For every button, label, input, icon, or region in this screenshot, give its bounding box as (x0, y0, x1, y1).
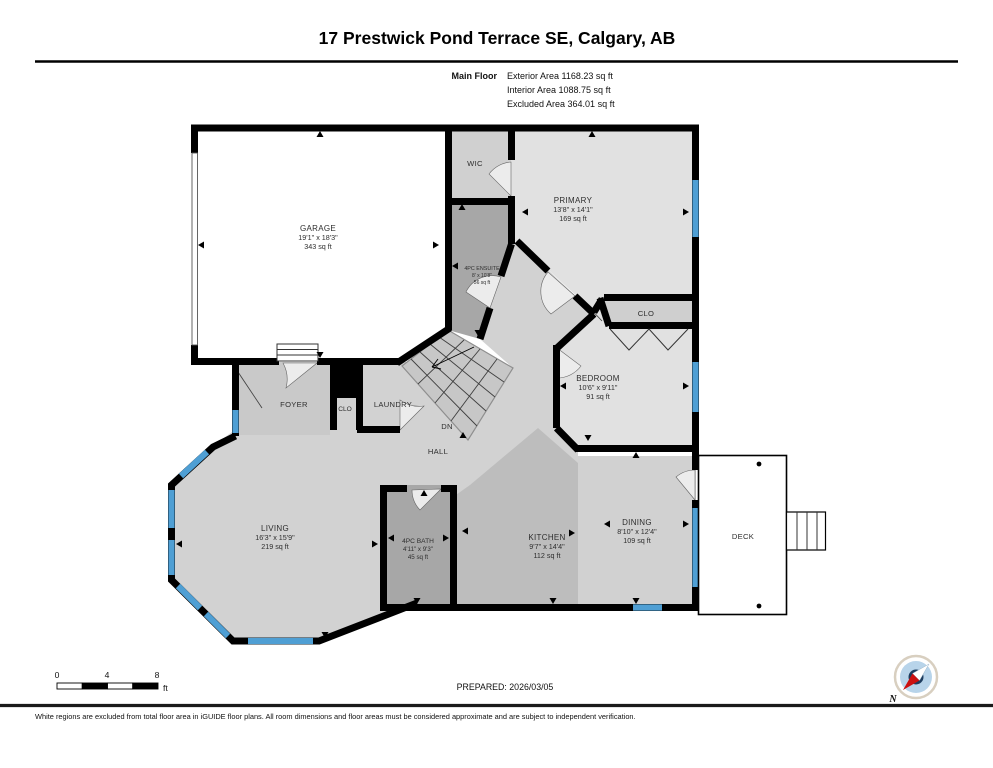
svg-text:56 sq ft: 56 sq ft (474, 280, 491, 286)
laundry-label: LAUNDRY (374, 400, 412, 409)
page-title: 17 Prestwick Pond Terrace SE, Calgary, A… (319, 28, 676, 48)
compass-north-label: N (888, 694, 897, 705)
interior-area: Interior Area 1088.75 sq ft (507, 85, 611, 95)
kitchen-label: KITCHEN 9'7" x 14'4" 112 sq ft (528, 533, 565, 560)
svg-text:109 sq ft: 109 sq ft (623, 536, 651, 545)
hall-label: HALL (428, 447, 448, 456)
svg-text:91 sq ft: 91 sq ft (586, 392, 610, 401)
svg-text:BEDROOM: BEDROOM (576, 374, 619, 383)
foyer-closet-bulkhead (336, 365, 357, 398)
deck-post (757, 604, 762, 609)
scale-tick-0: 0 (55, 670, 60, 680)
stairs-dn-label: DN (441, 422, 453, 431)
garage-door (192, 153, 198, 345)
front-steps (277, 344, 318, 361)
svg-text:45 sq ft: 45 sq ft (408, 554, 429, 561)
svg-text:13'8" x 14'1": 13'8" x 14'1" (553, 205, 593, 214)
foyer-closet-label: CLO (338, 406, 352, 413)
svg-text:169 sq ft: 169 sq ft (559, 214, 587, 223)
svg-text:PRIMARY: PRIMARY (554, 196, 593, 205)
svg-text:16'3" x 15'9": 16'3" x 15'9" (255, 533, 295, 542)
svg-text:219 sq ft: 219 sq ft (261, 542, 289, 551)
deck-post (757, 462, 762, 467)
svg-text:8' x 10'8": 8' x 10'8" (472, 273, 492, 279)
svg-text:4PC BATH: 4PC BATH (402, 538, 434, 545)
svg-text:10'6" x 9'11": 10'6" x 9'11" (579, 383, 618, 392)
svg-text:GARAGE: GARAGE (300, 224, 336, 233)
svg-text:112 sq ft: 112 sq ft (533, 551, 560, 560)
exterior-area: Exterior Area 1168.23 sq ft (507, 71, 613, 81)
svg-text:DINING: DINING (622, 518, 652, 527)
prepared-date: PREPARED: 2026/03/05 (457, 682, 554, 692)
svg-text:343 sq ft: 343 sq ft (304, 242, 332, 251)
primary-closet-label: CLO (638, 309, 655, 318)
svg-text:9'7" x 14'4": 9'7" x 14'4" (529, 542, 565, 551)
scale-bar: 0 4 8 ft (55, 670, 169, 693)
compass: N (888, 656, 937, 705)
disclaimer-text: White regions are excluded from total fl… (35, 712, 636, 721)
foyer-label: FOYER (280, 400, 308, 409)
svg-text:19'1" x 18'3": 19'1" x 18'3" (298, 233, 338, 242)
svg-text:4'11" x 9'3": 4'11" x 9'3" (403, 546, 433, 553)
wic-label: WIC (467, 159, 483, 168)
foyer-floor (232, 362, 330, 435)
svg-text:LIVING: LIVING (261, 524, 289, 533)
deck (699, 456, 826, 615)
excluded-area: Excluded Area 364.01 sq ft (507, 99, 615, 109)
floor-plan-canvas: 17 Prestwick Pond Terrace SE, Calgary, A… (0, 0, 993, 768)
svg-text:KITCHEN: KITCHEN (528, 533, 565, 542)
svg-text:4PC ENSUITE: 4PC ENSUITE (464, 266, 500, 272)
floor-plan-page: 17 Prestwick Pond Terrace SE, Calgary, A… (0, 0, 993, 768)
svg-text:8'10" x 12'4": 8'10" x 12'4" (617, 527, 657, 536)
floor-label: Main Floor (452, 71, 498, 81)
deck-steps (787, 512, 826, 550)
scale-tick-4: 4 (105, 670, 110, 680)
deck-label: DECK (732, 532, 754, 541)
header: 17 Prestwick Pond Terrace SE, Calgary, A… (35, 28, 958, 109)
scale-tick-8: 8 (155, 670, 160, 680)
scale-unit: ft (163, 683, 168, 693)
